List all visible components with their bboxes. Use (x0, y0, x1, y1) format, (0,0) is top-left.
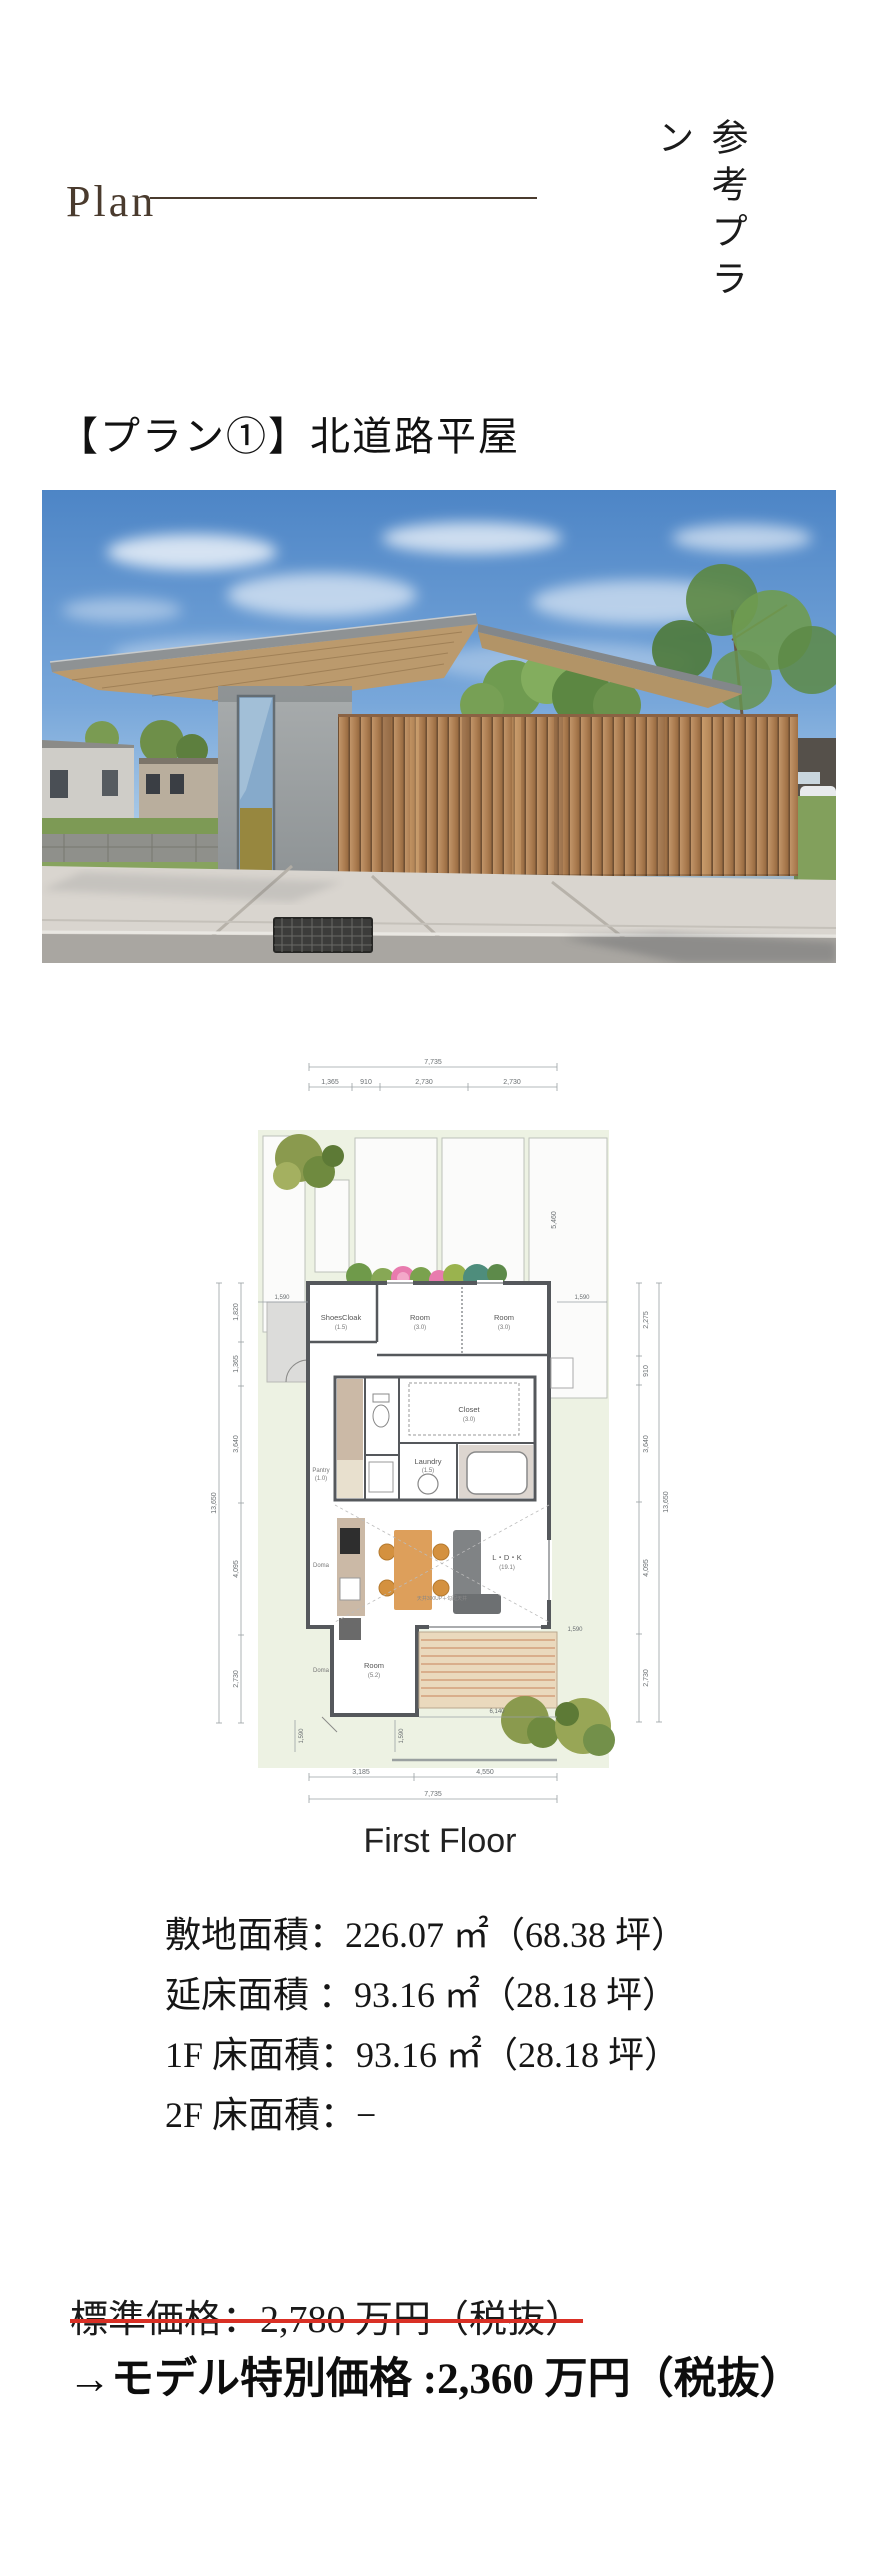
kitchen-sink (340, 1578, 360, 1600)
label-room3-size: (5.2) (368, 1673, 380, 1679)
wood-deck (419, 1632, 557, 1708)
spec-2f-floor-area: 2F 床面積：− (165, 2085, 687, 2145)
special-price: →モデル特別価格 :2,360 万円（税抜） (68, 2344, 803, 2406)
dim-bottom-1: 3,185 (352, 1769, 370, 1776)
dim-side-right: 1,590 (574, 1295, 590, 1301)
vertical-title: 参考プラン (644, 118, 752, 348)
label-laundry-size: (1.5) (422, 1468, 434, 1474)
dim-left-3: 3,640 (233, 1435, 240, 1453)
label-room1-size: (3.0) (414, 1325, 426, 1331)
standard-price-strikethrough: 標準価格：2,780 万円（税抜） (70, 2288, 583, 2343)
washbasin (369, 1462, 393, 1492)
dim-right-1: 2,275 (643, 1311, 650, 1329)
dim-left-4: 4,095 (233, 1560, 240, 1578)
label-ceiling-note: 天井300UP＋勾配天井 (417, 1595, 467, 1602)
dim-top-2: 910 (360, 1079, 372, 1086)
dim-top-4: 2,730 (503, 1079, 521, 1086)
entry-porch (267, 1302, 308, 1382)
dim-top-3: 2,730 (415, 1079, 433, 1086)
stone-wall (42, 834, 222, 862)
dim-left-2: 1,365 (233, 1355, 240, 1373)
dim-side-left: 1,590 (274, 1295, 290, 1301)
spec-total-floor-area: 延床面積 ：93.16 ㎡（28.18 坪） (165, 1965, 687, 2025)
house-wall (214, 686, 356, 896)
stove (339, 1618, 361, 1640)
label-doma-lower: Doma (313, 1668, 330, 1674)
area-specs: 敷地面積：226.07 ㎡（68.38 坪） 延床面積 ：93.16 ㎡（28.… (165, 1905, 687, 2145)
washing-machine (418, 1474, 438, 1494)
dim-right-4: 4,095 (643, 1559, 650, 1577)
label-pantry: Pantry (312, 1468, 329, 1474)
dim-inner-height: 5,460 (551, 1211, 558, 1229)
section-heading: 【プラン①】北道路平屋 (58, 404, 520, 462)
floor-plan: 7,735 1,365 910 2,730 2,730 1,820 1,365 … (147, 1020, 733, 1820)
label-closet: Closet (458, 1405, 480, 1414)
dim-bottom-total: 7,735 (424, 1791, 442, 1798)
plan-underline (150, 197, 537, 199)
dim-deck-width: 6,140 (489, 1709, 505, 1715)
bathtub (467, 1452, 527, 1494)
driveway (42, 866, 836, 963)
pantry-lower (337, 1460, 363, 1498)
drain-grate (274, 918, 372, 952)
floor-plan-caption: First Floor (150, 1822, 730, 1861)
dim-left-1: 1,820 (233, 1303, 240, 1321)
toilet (373, 1394, 389, 1427)
label-closet-size: (3.0) (463, 1417, 475, 1423)
dim-top-total: 7,735 (424, 1059, 442, 1066)
dim-left-total: 13,650 (211, 1492, 218, 1514)
label-room2: Room (494, 1313, 514, 1322)
dim-right-5: 2,730 (643, 1669, 650, 1687)
label-doma-upper: Doma (313, 1563, 330, 1569)
dim-porch-2: 1,590 (399, 1728, 405, 1744)
wood-fence (338, 714, 798, 882)
floor-plan-drawing: 7,735 1,365 910 2,730 2,730 1,820 1,365 … (147, 1020, 733, 1820)
dim-top-1: 1,365 (321, 1079, 339, 1086)
label-pantry-size: (1.0) (315, 1476, 327, 1482)
label-shoes-cloak: ShoesCloak (321, 1313, 362, 1322)
dim-gate: 1,590 (567, 1627, 583, 1633)
right-neighbor (792, 738, 836, 888)
dim-right-total: 13,650 (663, 1491, 670, 1513)
spec-site-area: 敷地面積：226.07 ㎡（68.38 坪） (165, 1905, 687, 1965)
label-ldk-size: (19.1) (499, 1565, 515, 1571)
dim-left-5: 2,730 (233, 1670, 240, 1688)
label-laundry: Laundry (414, 1457, 441, 1466)
exterior-photo-scene (42, 490, 836, 963)
cooktop (340, 1528, 360, 1554)
plan-label: Plan (66, 176, 156, 227)
laundry-deck (551, 1358, 573, 1388)
spec-1f-floor-area: 1F 床面積：93.16 ㎡（28.18 坪） (165, 2025, 687, 2085)
plan-page: Plan 参考プラン 【プラン①】北道路平屋 (0, 0, 874, 2560)
dim-bottom-2: 4,550 (476, 1769, 494, 1776)
exterior-photo (42, 490, 836, 963)
dim-right-3: 3,640 (643, 1435, 650, 1453)
label-room3: Room (364, 1661, 384, 1670)
label-shoes-cloak-size: (1.5) (335, 1325, 347, 1331)
dim-right-2: 910 (643, 1365, 650, 1377)
label-ldk: L・D・K (492, 1553, 522, 1562)
label-room2-size: (3.0) (498, 1325, 510, 1331)
dim-porch-1: 1,590 (299, 1728, 305, 1744)
label-room1: Room (410, 1313, 430, 1322)
